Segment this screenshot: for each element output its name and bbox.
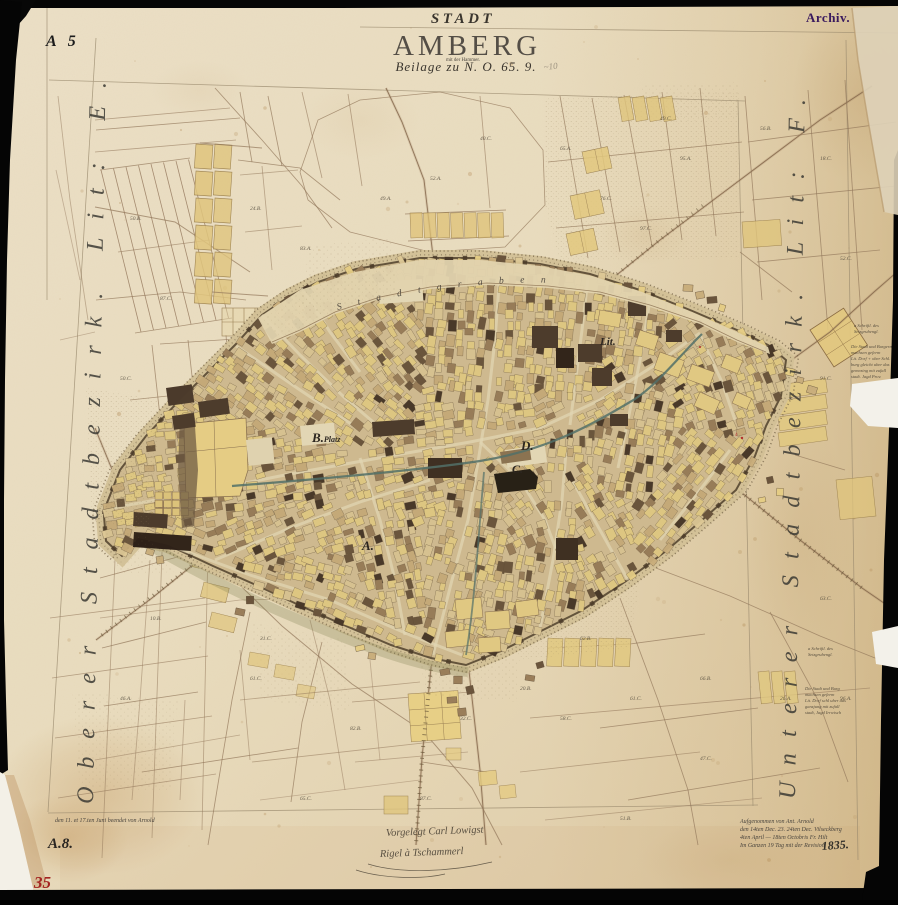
svg-text:machsen geferm: machsen geferm — [851, 350, 881, 355]
svg-text:63.C.: 63.C. — [820, 596, 832, 602]
svg-text:49.C.: 49.C. — [660, 115, 672, 122]
svg-text:65.A.: 65.A. — [560, 146, 572, 152]
svg-text:Die Stadt und Burg: Die Stadt und Burg — [804, 686, 840, 691]
svg-text:35: 35 — [33, 873, 52, 892]
svg-text:97.C.: 97.C. — [640, 226, 652, 232]
svg-text:A.: A. — [361, 538, 374, 553]
svg-text:STADT: STADT — [431, 11, 495, 27]
svg-text:56.B.: 56.B. — [760, 126, 772, 132]
svg-text:87.C.: 87.C. — [420, 796, 432, 802]
svg-text:1835.: 1835. — [821, 837, 849, 853]
svg-text:66.B.: 66.B. — [700, 676, 712, 682]
svg-text:Lit. Dorf schl uber das: Lit. Dorf schl uber das — [804, 698, 846, 703]
svg-text:76.C.: 76.C. — [600, 196, 612, 202]
svg-text:20.B.: 20.B. — [520, 686, 532, 692]
svg-text:ganzjung mit zufall: ganzjung mit zufall — [805, 704, 840, 709]
svg-text:50.B.: 50.B. — [130, 216, 142, 222]
svg-text:52.A.: 52.A. — [430, 176, 442, 182]
svg-text:Setzgrubengl.: Setzgrubengl. — [854, 329, 879, 334]
svg-text:~10: ~10 — [543, 61, 558, 72]
svg-text:Lit. Dorf + ober Schl.: Lit. Dorf + ober Schl. — [850, 356, 890, 361]
svg-text:65.C.: 65.C. — [300, 796, 312, 802]
svg-text:82.B.: 82.B. — [350, 726, 362, 732]
svg-text:47.C.: 47.C. — [700, 755, 712, 762]
svg-text:50.C.: 50.C. — [120, 376, 132, 382]
svg-text:Archiv.: Archiv. — [806, 10, 850, 25]
svg-text:24.B.: 24.B. — [250, 205, 262, 212]
svg-text:58.C.: 58.C. — [560, 716, 572, 722]
svg-text:40.C.: 40.C. — [480, 135, 492, 142]
svg-text:26.A.: 26.A. — [780, 696, 792, 702]
svg-text:a Schriftl. des: a Schriftl. des — [808, 646, 833, 651]
svg-text:den 14ten Dec. 23. 24ten Dec.: den 14ten Dec. 23. 24ten Dec. Vilseckber… — [740, 826, 842, 833]
svg-text:87.C.: 87.C. — [160, 296, 172, 302]
svg-text:32.C.: 32.C. — [459, 716, 472, 722]
svg-text:Aufgenommen von Ant. Arnold: Aufgenommen von Ant. Arnold — [739, 818, 815, 825]
svg-text:Setzgrubengl.: Setzgrubengl. — [808, 652, 833, 657]
svg-text:Beilage zu N. O. 65. 9.: Beilage zu N. O. 65. 9. — [395, 59, 536, 74]
svg-text:51.B.: 51.B. — [620, 816, 632, 822]
svg-text:Lit.: Lit. — [599, 336, 616, 348]
svg-text:stadt. Jagd Prov.: stadt. Jagd Prov. — [851, 374, 881, 379]
svg-text:10.B.: 10.B. — [150, 616, 162, 622]
svg-text:61.C.: 61.C. — [630, 696, 642, 702]
svg-text:61.C.: 61.C. — [250, 676, 262, 682]
svg-text:machsen geferm: machsen geferm — [805, 692, 835, 697]
svg-text:52.C.: 52.C. — [840, 256, 852, 262]
svg-text:Die Stadt und Burgerm: Die Stadt und Burgerm — [850, 344, 893, 349]
svg-text:a Schriftl. des: a Schriftl. des — [854, 323, 879, 328]
svg-text:91.C.: 91.C. — [820, 376, 832, 382]
svg-text:4ten April — 18ten Octobris Fr: 4ten April — 18ten Octobris Fr. Hilt — [740, 834, 828, 841]
svg-text:A 5: A 5 — [45, 33, 80, 50]
svg-text:den 11. et 17.ten Juni beendet: den 11. et 17.ten Juni beendet von Arnol… — [55, 818, 156, 824]
svg-text:gemezing mit zufall: gemezing mit zufall — [851, 368, 887, 373]
svg-text:18.C.: 18.C. — [820, 156, 832, 162]
svg-text:95.A.: 95.A. — [680, 156, 692, 162]
svg-text:62.B.: 62.B. — [580, 636, 592, 642]
svg-text:31.C.: 31.C. — [259, 636, 272, 642]
svg-text:Im Ganzen 19 Tag mit der Revis: Im Ganzen 19 Tag mit der Revision — [739, 843, 825, 849]
svg-text:49.A.: 49.A. — [380, 195, 392, 202]
svg-text:C.: C. — [512, 462, 523, 476]
svg-text:D.: D. — [520, 438, 534, 453]
svg-text:burg gleicht uber das: burg gleicht uber das — [851, 362, 890, 367]
svg-text:A.8.: A.8. — [47, 836, 73, 852]
svg-text:46.A.: 46.A. — [120, 695, 132, 702]
